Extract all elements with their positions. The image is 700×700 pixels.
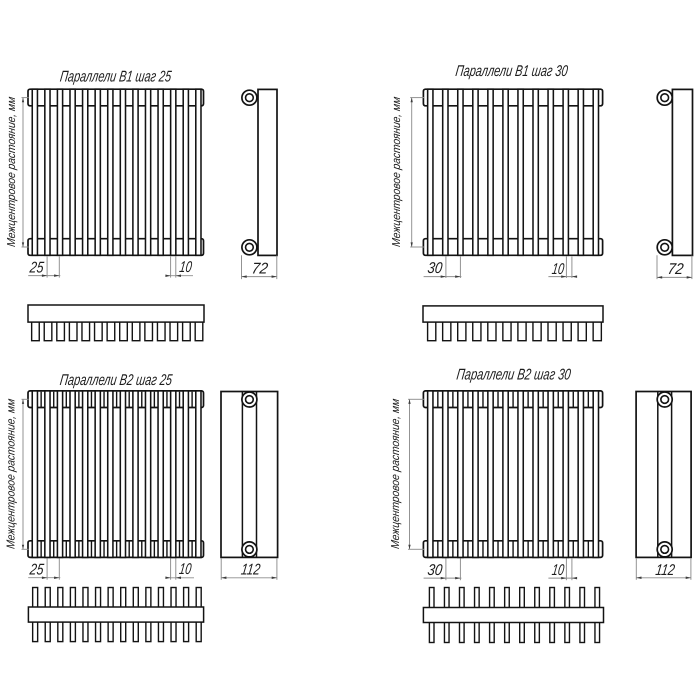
svg-text:72: 72 — [667, 261, 685, 278]
svg-text:Параллели В1 шаг 30: Параллели В1 шаг 30 — [454, 63, 569, 80]
svg-text:112: 112 — [240, 562, 262, 579]
svg-text:Межцентровое растояние, мм: Межцентровое растояние, мм — [5, 96, 18, 248]
svg-text:Межцентровое растояние, мм: Межцентровое растояние, мм — [389, 398, 402, 550]
svg-text:Параллели В2 шаг 30: Параллели В2 шаг 30 — [455, 367, 572, 384]
svg-text:30: 30 — [426, 260, 443, 277]
svg-text:Межцентровое растояние, мм: Межцентровое растояние, мм — [5, 398, 18, 550]
svg-text:112: 112 — [654, 562, 676, 579]
svg-text:Параллели В1 шаг 25: Параллели В1 шаг 25 — [59, 69, 173, 86]
svg-text:25: 25 — [28, 260, 45, 277]
svg-text:10: 10 — [178, 259, 193, 276]
svg-text:Параллели В2 шаг 25: Параллели В2 шаг 25 — [59, 372, 174, 389]
svg-text:30: 30 — [426, 562, 443, 579]
svg-text:72: 72 — [251, 260, 270, 277]
svg-text:Межцентровое растояние, мм: Межцентровое растояние, мм — [390, 96, 403, 248]
svg-text:25: 25 — [28, 562, 45, 579]
